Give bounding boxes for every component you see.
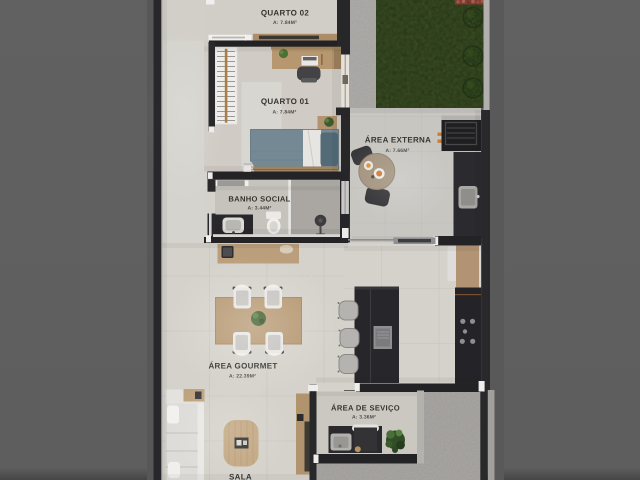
svg-text:BANHO SOCIAL: BANHO SOCIAL bbox=[228, 195, 290, 204]
svg-text:A: 3.44M²: A: 3.44M² bbox=[247, 206, 271, 212]
svg-text:A: 7.84M²: A: 7.84M² bbox=[272, 110, 296, 116]
svg-text:A: 3.36M²: A: 3.36M² bbox=[352, 415, 376, 421]
svg-text:ÁREA DE SEVIÇO: ÁREA DE SEVIÇO bbox=[331, 404, 400, 413]
svg-text:A: 7.84M²: A: 7.84M² bbox=[273, 20, 297, 26]
svg-text:QUARTO 02: QUARTO 02 bbox=[261, 9, 310, 18]
svg-text:QUARTO 01: QUARTO 01 bbox=[261, 97, 310, 106]
